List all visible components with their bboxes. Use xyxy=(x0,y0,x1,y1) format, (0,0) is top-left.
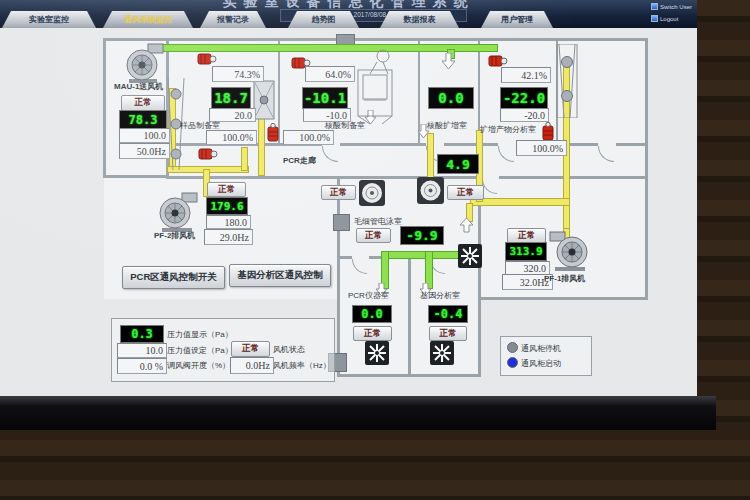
equipment-sketch xyxy=(350,44,400,126)
ceiling-fan-icon xyxy=(417,177,444,204)
product-analysis-label: 扩增产物分析室 xyxy=(480,124,536,135)
panel-fan-status-button[interactable]: 正常 xyxy=(231,341,270,357)
logout-button[interactable]: Logout xyxy=(651,14,678,24)
nucleic-prep-pressure-led: -10.1 xyxy=(302,87,348,109)
pf1-label: PF-1排风机 xyxy=(544,273,585,284)
product-analysis-exhaust-damper: 100.0% xyxy=(516,140,567,156)
sample-prep-exhaust-damper: 100.0% xyxy=(206,130,257,145)
pf2-status-button[interactable]: 正常 xyxy=(207,182,246,197)
tab-ventilation-monitor[interactable]: 通风系统监控 xyxy=(103,11,193,28)
capillary-status-button[interactable]: 正常 xyxy=(356,228,391,243)
mau1-status-button[interactable]: 正常 xyxy=(121,95,165,111)
capillary-label: 毛细管电泳室 xyxy=(354,216,402,227)
pf2-label: PF-2排风机 xyxy=(154,230,195,241)
gene-analysis-status-button[interactable]: 正常 xyxy=(429,326,467,341)
nucleic-prep-exhaust-damper: 100.0% xyxy=(283,130,334,145)
product-analysis-setpoint-field[interactable]: -20.0 xyxy=(500,108,549,122)
panel-setpoint-label: 压力值设定（Pa） xyxy=(167,345,233,356)
supply-damper-icon xyxy=(488,53,508,68)
panel-fan-status-label: 风机状态 xyxy=(273,344,305,355)
exhaust-damper-icon xyxy=(198,146,218,161)
panel-pressure-label: 压力值显示（Pa） xyxy=(167,329,233,340)
capillary-pressure-led: -9.9 xyxy=(400,226,444,245)
exhaust-fan-icon xyxy=(458,244,482,268)
fume-hood-stopped-label: 通风柜停机 xyxy=(521,343,561,354)
app-header: 实验室设备信息化管理系统 Current Time: 2017/08/08 星期… xyxy=(0,0,697,28)
pf1-status-button[interactable]: 正常 xyxy=(507,228,546,243)
fan-coil-icon xyxy=(253,80,275,120)
panel-damper-label: 调风阀开度（%） xyxy=(167,360,230,371)
amplification-pressure-led: 0.0 xyxy=(428,87,474,109)
duct-junction-box xyxy=(333,214,350,231)
corridor-fan1-status-button[interactable]: 正常 xyxy=(321,185,356,200)
fume-hood-stopped-dot xyxy=(507,342,518,353)
exhaust-fan-icon xyxy=(430,341,454,365)
pf2-pressure-led: 179.6 xyxy=(206,197,248,215)
panel-pressure-led: 0.3 xyxy=(120,325,164,343)
exhaust-inlet-arrow-icon xyxy=(459,218,474,233)
pf2-blower-icon xyxy=(154,191,198,233)
nucleic-prep-supply-damper: 64.0% xyxy=(305,66,355,82)
pf1-pressure-led: 313.9 xyxy=(505,242,547,261)
logout-icon xyxy=(651,15,658,22)
corridor-fan2-status-button[interactable]: 正常 xyxy=(447,185,484,200)
gene-analysis-label: 基因分析室 xyxy=(420,290,460,301)
pf2-frequency: 29.0Hz xyxy=(204,229,253,245)
pcr-instrument-label: PCR仪器室 xyxy=(348,290,389,301)
corridor-pressure-led: 4.9 xyxy=(437,154,479,174)
mau1-blower-icon xyxy=(122,42,164,84)
panel-frequency-value: 0.0Hz xyxy=(230,357,274,374)
mau1-frequency: 50.0Hz xyxy=(119,143,170,159)
tab-lab-monitor[interactable]: 实验室监控 xyxy=(2,11,96,28)
switch-user-button[interactable]: Switch User xyxy=(651,2,692,12)
pf1-blower-icon xyxy=(549,230,593,272)
exhaust-damper-icon xyxy=(265,123,280,144)
mau1-pressure-led: 78.3 xyxy=(119,110,167,129)
switch-user-icon xyxy=(651,3,658,10)
product-analysis-pressure-led: -22.0 xyxy=(500,87,548,109)
supply-damper-icon xyxy=(197,51,217,66)
pcr-instrument-status-button[interactable]: 正常 xyxy=(353,326,392,341)
scada-screen: 实验室设备信息化管理系统 Current Time: 2017/08/08 星期… xyxy=(0,0,697,398)
product-analysis-supply-damper: 42.1% xyxy=(501,67,551,83)
pcr-instrument-pressure-led: 0.0 xyxy=(352,305,392,323)
panel-setpoint-field[interactable]: 10.0 xyxy=(117,343,167,358)
sample-prep-supply-damper: 74.3% xyxy=(212,66,264,82)
corridor-label: PCR走廊 xyxy=(283,155,316,166)
sample-prep-pressure-led: 18.7 xyxy=(211,87,251,109)
fume-hood-running-dot xyxy=(507,357,518,368)
ceiling-fan-icon xyxy=(359,180,385,206)
amplification-label: 核酸扩增室 xyxy=(427,120,467,131)
panel-damper-value: 0.0 % xyxy=(117,358,167,374)
mau1-label: MAU-1送风机 xyxy=(114,81,163,92)
mau1-setpoint-field[interactable]: 100.0 xyxy=(119,128,170,143)
tab-user-manage[interactable]: 用户管理 xyxy=(481,11,553,28)
exhaust-fan-icon xyxy=(365,341,389,365)
tab-alarm-record[interactable]: 报警记录 xyxy=(200,11,266,28)
monitor-bezel xyxy=(0,396,716,430)
gene-analysis-pressure-led: -0.4 xyxy=(428,305,468,323)
tab-trend[interactable]: 趋势图 xyxy=(288,11,359,28)
gene-zone-vent-control-button[interactable]: 基因分析区通风控制 xyxy=(229,264,331,287)
duct-shaft-icon xyxy=(555,44,579,118)
pcr-zone-vent-switch-button[interactable]: PCR区通风控制开关 xyxy=(122,266,225,289)
fume-hood-running-label: 通风柜启动 xyxy=(521,358,561,369)
supply-outlet-arrow-icon xyxy=(441,53,456,70)
pf2-setpoint-field[interactable]: 180.0 xyxy=(206,215,251,229)
panel-frequency-label: 风机频率（Hz） xyxy=(273,360,331,371)
tab-report[interactable]: 数据报表 xyxy=(380,11,459,28)
